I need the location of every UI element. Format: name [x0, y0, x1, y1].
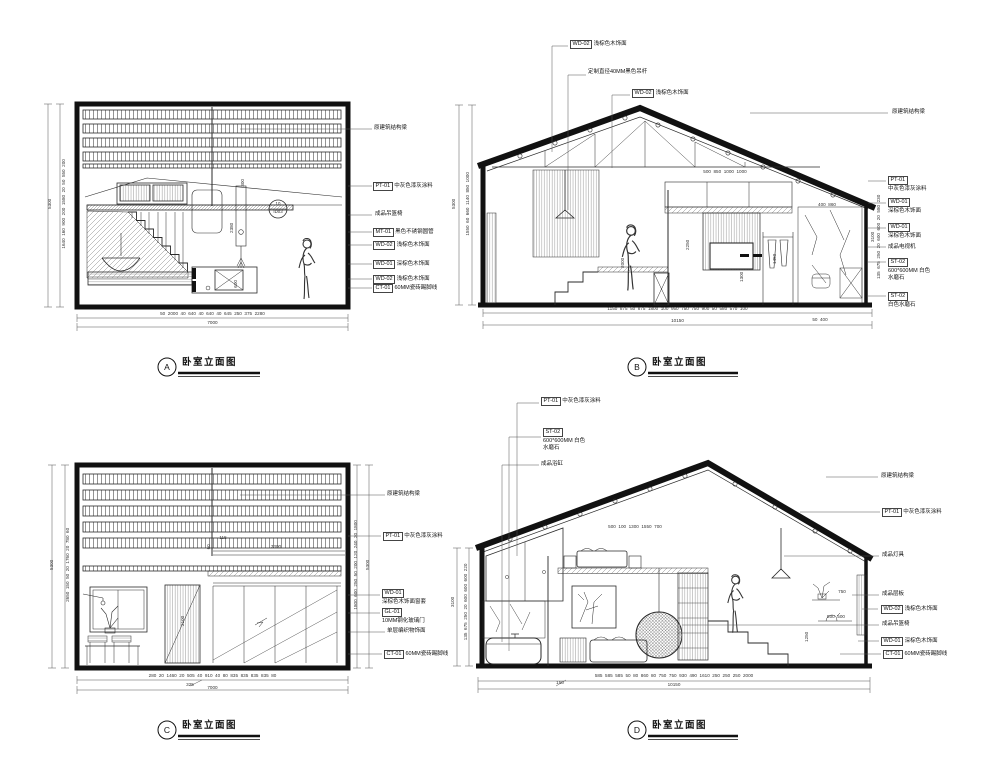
dims-right-b: 135 675 250 20 600 600 20 580 230	[876, 167, 882, 307]
pendant-lamp-d	[772, 528, 790, 578]
loft-bed-d	[558, 549, 708, 574]
callout-top2-b: 定制直径40MM黑色吊杆	[588, 69, 647, 76]
dims-left-total-c: 5300	[49, 465, 55, 665]
plant-c	[101, 606, 118, 628]
callout-wd01-c: WD-01深棕色木饰面窗套	[382, 589, 440, 606]
callout-text: 中灰色漆灰涂料	[404, 533, 443, 539]
toilet-b	[812, 274, 830, 288]
callout-pt01-r-d: PT-01中灰色漆灰涂料	[882, 508, 942, 517]
callout-text: 原建筑结构梁	[881, 473, 914, 479]
closet-hangers-b	[763, 232, 793, 305]
view-title-a: 卧室立面图	[182, 357, 237, 369]
callout-beam-c: 原建筑结构梁	[387, 491, 420, 498]
callout-chair-a: 成品吊篮椅	[375, 211, 403, 218]
interior-dim-d1: 750	[828, 589, 856, 595]
staircase-a	[87, 211, 188, 278]
dims-right-c: 1800 600 250 50 200 120 240 20 1800	[353, 465, 359, 665]
callout-text: 深棕色木饰面	[905, 638, 938, 644]
callout-text: 浅棕色木饰面	[905, 606, 938, 612]
wall-strip-b	[487, 213, 496, 303]
view-tag-c: C	[158, 725, 176, 736]
callout-text: 定制直径40MM黑色吊杆	[588, 69, 647, 75]
callout-r4-b: 成品电视机	[888, 244, 916, 251]
interior-dim-v4-b: 2000	[620, 249, 626, 277]
roof-lights-d	[508, 474, 852, 553]
callout-wd02-d: WD-02浅棕色木饰面	[881, 605, 938, 614]
view-title-d: 卧室立面图	[652, 720, 707, 732]
material-code: ST-02	[888, 292, 908, 301]
callout-text: 成品层板	[882, 591, 904, 597]
lower-bedroom-d	[560, 568, 788, 666]
callout-text: 成品吊篮椅	[882, 621, 910, 627]
callout-text: 成品灯具	[882, 552, 904, 558]
material-code: PT-01	[882, 508, 902, 517]
callout-r3-b: WD-01深棕色木饰面	[888, 223, 934, 240]
view-tag-d: D	[628, 725, 646, 736]
dims-bottom-total-a: 7000	[77, 320, 348, 326]
material-code: WD-02	[881, 605, 903, 614]
rattan-ball-chair-d	[636, 612, 682, 658]
drawing-c-linework	[48, 465, 385, 694]
dims-left-total-b: 5300	[451, 104, 457, 304]
callout-weave-c: 单层编织物饰面	[387, 628, 426, 635]
dims-bottom-total-d: 10150	[478, 682, 870, 688]
callout-tub-d: 成品浴缸	[541, 461, 563, 468]
dims-left-a: 1640 160 900 200 1580 20 50 550 200	[61, 104, 67, 304]
callout-text: 60MM瓷砖踢脚线	[904, 651, 947, 657]
callout-r1-b: PT-01中灰色漆灰涂料	[888, 176, 934, 193]
callout-beam-b: 原建筑结构梁	[892, 109, 925, 116]
callout-text: 600*600MM 白色水磨石	[888, 268, 930, 281]
callout-wd01-a: WD-01深棕色木饰面	[373, 260, 430, 269]
callout-text: 深棕色木饰面	[888, 233, 921, 239]
callout-text: 深棕色木饰面	[397, 261, 430, 267]
callout-text: 浅棕色木饰面	[656, 90, 689, 96]
material-code: ST-02	[543, 428, 563, 437]
interior-dim-a1: 300	[240, 173, 246, 193]
callout-text: 60MM瓷砖踢脚线	[394, 285, 437, 291]
material-code: WD-01	[382, 589, 404, 598]
callout-r6-b: ST-02白色水磨石	[888, 292, 934, 309]
callout-text: 黑色不锈钢圆管	[395, 229, 434, 235]
material-code: WD-01	[888, 223, 910, 232]
dims-bottom-d: 585 585 585 50 80 860 80 750 750 930 490…	[478, 673, 870, 679]
material-code: GL-01	[382, 608, 402, 617]
material-code: WD-02	[373, 241, 395, 250]
platform-steps-b	[555, 267, 669, 305]
callout-pt01-a: PT-01中灰色漆灰涂料	[373, 182, 433, 191]
interior-dim-c1: 115	[213, 535, 233, 541]
callout-text: 成品吊篮椅	[375, 211, 403, 217]
material-code: WD-01	[881, 637, 903, 646]
interior-dims-top-d: 500 100 1300 1550 700	[545, 524, 725, 530]
drawing-a-linework	[44, 104, 372, 331]
callout-chair-d: 成品吊篮椅	[882, 621, 910, 628]
callout-st02-l-d: ST-02600*600MM 白色水磨石	[543, 428, 587, 452]
interior-dim-v2-b: 1450	[772, 245, 778, 273]
callout-mt01-a: MT-01黑色不锈钢圆管	[373, 228, 434, 237]
interior-dim-v1-b: 2250	[685, 231, 691, 259]
interior-dim-c3: 60	[206, 538, 212, 556]
callout-pt01-l-d: PT-01中灰色漆灰涂料	[541, 397, 601, 406]
callout-text: 浅棕色木饰面	[397, 242, 430, 248]
callout-wd02-a: WD-02浅棕色木饰面	[373, 241, 430, 250]
material-code: CT-01	[373, 284, 393, 293]
dim-lines-b	[455, 105, 872, 329]
callout-text: 中灰色漆灰涂料	[394, 183, 433, 189]
callout-text: 600*600MM 白色水磨石	[543, 438, 585, 451]
shelf-c	[208, 551, 345, 576]
bathtub-d	[486, 638, 541, 664]
curtain-b	[533, 170, 599, 257]
interior-dim-c4: 2100	[180, 608, 186, 634]
material-code: WD-01	[373, 260, 395, 269]
callout-text: 白色水磨石	[888, 302, 916, 308]
drawing-d-linework	[453, 403, 881, 693]
callout-ct01-c: CT-0160MM瓷砖踢脚线	[384, 650, 448, 659]
person-figure-a	[299, 238, 315, 299]
callout-top1-b: WD-02浅棕色木饰面	[570, 40, 627, 49]
callout-r2-b: WD-01深棕色木饰面	[888, 198, 934, 215]
stair-side-d	[678, 573, 708, 660]
material-code: MT-01	[373, 228, 394, 237]
drawing-sheet: { "sheet": {"background": "#ffffff", "li…	[0, 0, 1000, 778]
dims-left-c: 2650 150 50 20 1760 20 780 60	[65, 465, 71, 665]
window-c	[83, 587, 147, 633]
roof-d	[476, 463, 872, 562]
material-code: WD-01	[888, 198, 910, 207]
callout-lamp-d: 成品灯具	[882, 552, 904, 559]
callout-gl01-c: GL-0110MM钢化玻璃门	[382, 608, 440, 625]
beam-slats-c	[83, 468, 341, 571]
interior-dim-a2: 2380	[229, 215, 235, 241]
dims-bottom-b: 1150 875 50 875 1800 100 950 750 750 900…	[483, 306, 872, 312]
dims-left-total-a: 5300	[47, 104, 53, 304]
marble-wall-b	[798, 207, 862, 303]
dims-left-b: 1550 60 660 1140 850 1000	[465, 104, 471, 304]
interior-dim-a3: 600	[233, 272, 239, 296]
callout-r5-b: ST-02600*600MM 白色水磨石	[888, 258, 934, 282]
callout-text: 中灰色漆灰涂料	[562, 398, 601, 404]
callout-pt01-c: PT-01中灰色漆灰涂料	[383, 532, 443, 541]
view-tag-b: B	[628, 362, 646, 373]
bath-zone-d	[483, 528, 563, 666]
dims-bottom-total-b: 10150	[483, 318, 872, 324]
callout-text: 单层编织物饰面	[387, 628, 426, 634]
view-title-c: 卧室立面图	[182, 720, 237, 732]
detail-bubble-number: 10	[268, 201, 288, 207]
material-code: PT-01	[373, 182, 393, 191]
glass-partition-c	[213, 583, 341, 663]
view-title-b: 卧室立面图	[652, 357, 707, 369]
material-code: WD-02	[570, 40, 592, 49]
interior-dim-d2: 500 500	[814, 614, 858, 620]
callout-text: 成品电视机	[888, 244, 916, 250]
material-code: ST-02	[888, 258, 908, 267]
dims-right-total-c: 5300	[365, 465, 371, 665]
callout-shelf-d: 成品层板	[882, 591, 904, 598]
interior-dim-c2: 3300	[262, 544, 290, 550]
linework-canvas	[0, 0, 1000, 778]
interior-dim-v3-b: 1300	[739, 263, 745, 291]
callout-beam-a: 原建筑结构梁	[374, 125, 407, 132]
callout-text: 60MM瓷砖踢脚线	[405, 651, 448, 657]
steps-d	[708, 621, 788, 666]
callout-wd02b-a: WD-02浅棕色木饰面	[373, 275, 430, 284]
material-code: CT-01	[384, 650, 404, 659]
person-figure-d	[728, 575, 743, 633]
interior-dim-d3: 1250	[804, 623, 810, 651]
material-code: WD-02	[632, 89, 654, 98]
callout-ct01-a: CT-0160MM瓷砖踢脚线	[373, 284, 437, 293]
material-code: PT-01	[541, 397, 561, 406]
callout-text: 浅棕色木饰面	[594, 41, 627, 47]
callout-ct01-d: CT-0160MM瓷砖踢脚线	[883, 650, 947, 659]
dims-left-total-d: 3100	[450, 522, 456, 682]
callout-text: 深棕色木饰面窗套	[382, 599, 426, 605]
callout-wd01-d: WD-01深棕色木饰面	[881, 637, 938, 646]
dims-right-total-b: 3100	[870, 167, 876, 307]
callout-text: 中灰色漆灰涂料	[903, 509, 942, 515]
material-code: CT-01	[883, 650, 903, 659]
callout-text: 成品浴缸	[541, 461, 563, 467]
dims-bottom-c: 280 20 1460 20 505 40 910 40 80 835 835 …	[77, 673, 348, 679]
detail-bubble-ref: ID03	[268, 209, 288, 215]
callout-beam-d: 原建筑结构梁	[881, 473, 914, 480]
callout-top3-b: WD-02浅棕色木饰面	[632, 89, 689, 98]
wardrobe-tv-wall-b	[665, 182, 792, 305]
dims-bottom-a: 50 2000 40 640 40 640 40 645 250 375 228…	[77, 311, 348, 317]
interior-dims-top-b: 500 850 1000 1000	[650, 169, 800, 175]
view-tag-a: A	[158, 362, 176, 373]
table-chairs-c	[85, 636, 140, 665]
loft-floor-a	[87, 205, 342, 210]
callout-text: 原建筑结构梁	[374, 125, 407, 131]
callout-text: 中灰色漆灰涂料	[888, 186, 927, 192]
right-shelves-d	[812, 575, 866, 635]
dims-left-d: 135 675 250 20 600 600 600 220	[463, 522, 469, 682]
material-code: PT-01	[383, 532, 403, 541]
callout-text: 浅棕色木饰面	[397, 276, 430, 282]
material-code: PT-01	[888, 176, 908, 185]
callout-text: 10MM钢化玻璃门	[382, 618, 425, 624]
callout-text: 原建筑结构梁	[387, 491, 420, 497]
dims-bottom-total-c: 7000	[77, 685, 348, 691]
callout-text: 深棕色木饰面	[888, 208, 921, 214]
hanging-rod-a	[236, 186, 246, 268]
material-code: WD-02	[373, 275, 395, 284]
interior-dims-mid-b: 400 860	[794, 202, 860, 208]
artwork-d	[572, 586, 616, 628]
